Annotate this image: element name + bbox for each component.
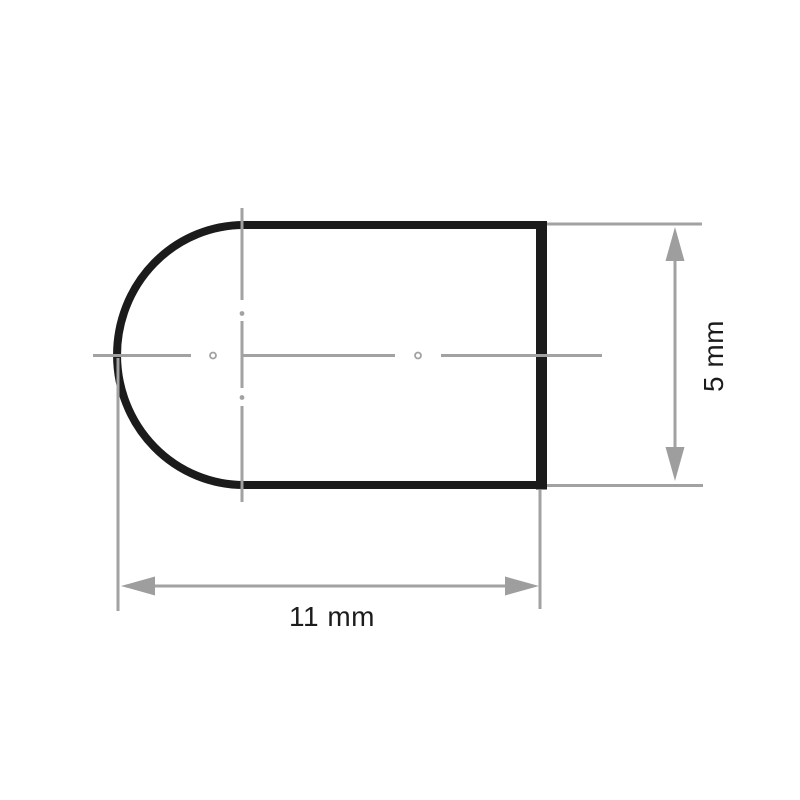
centerline-ring-dot <box>415 353 421 359</box>
arrow-left-icon <box>121 577 155 596</box>
height-dimension-label: 5 mm <box>698 320 729 392</box>
width-dimension: 11 mm <box>121 577 539 633</box>
technical-drawing-page: 11 mm 5 mm <box>0 0 800 800</box>
extension-lines <box>118 224 703 611</box>
height-dimension: 5 mm <box>666 227 730 481</box>
centerline-dot <box>240 395 245 400</box>
width-dimension-label: 11 mm <box>289 601 375 632</box>
arrow-down-icon <box>666 447 685 481</box>
arrow-up-icon <box>666 227 685 261</box>
centerline-dot <box>240 311 245 316</box>
arrow-right-icon <box>505 577 539 596</box>
dimension-drawing-canvas: 11 mm 5 mm <box>0 0 800 800</box>
horizontal-centerline <box>93 353 602 359</box>
centerline-ring-dot <box>210 353 216 359</box>
